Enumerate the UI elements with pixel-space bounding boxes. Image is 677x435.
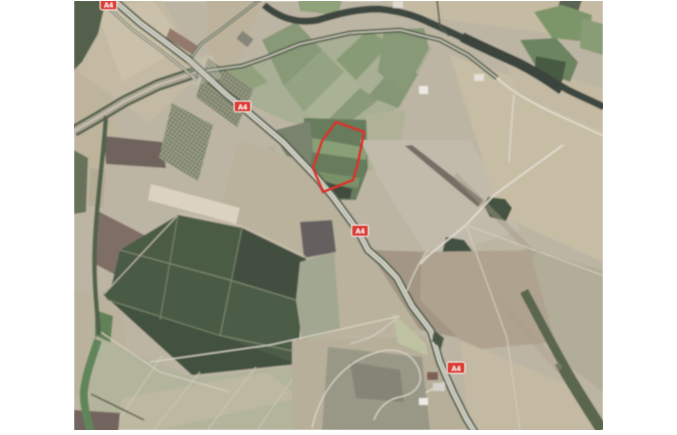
svg-text:A4: A4: [452, 366, 461, 373]
svg-text:A4: A4: [104, 3, 113, 10]
svg-text:A4: A4: [356, 229, 365, 236]
svg-text:A4: A4: [238, 105, 247, 112]
